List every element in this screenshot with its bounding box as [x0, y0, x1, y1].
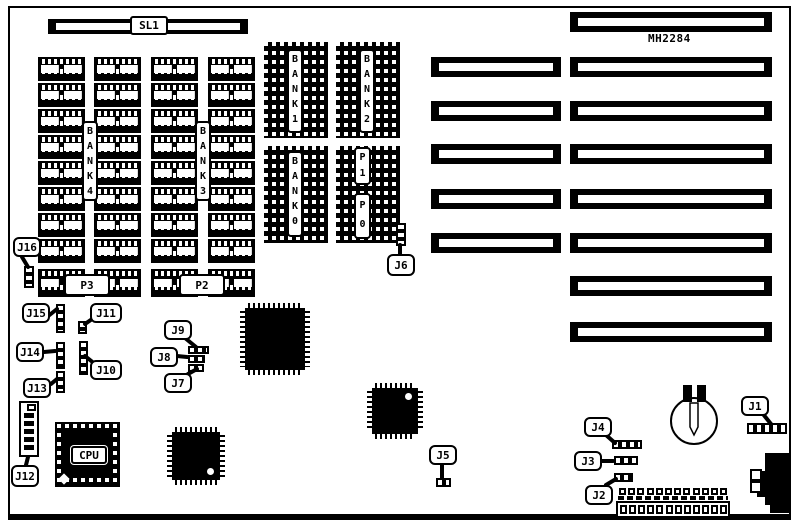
power-connector-tab: [693, 488, 700, 495]
power-connector-tab: [656, 488, 663, 495]
power-connector-tab: [683, 488, 690, 495]
power-connector-tab: [674, 488, 681, 495]
j10-jumper: [79, 341, 88, 375]
j8-jumper: [188, 355, 205, 363]
sl1-label: SL1: [130, 16, 168, 35]
j12-callout: J12: [11, 465, 39, 487]
bank4-label: BANK4: [82, 121, 98, 201]
j12-connector: [19, 401, 39, 457]
bank2-label: BANK2: [359, 49, 375, 133]
dip-memory-chip: [151, 135, 198, 159]
dip-memory-chip: [38, 109, 85, 133]
dip-memory-chip: [208, 239, 255, 263]
expansion-slot-segment: [570, 322, 772, 342]
motherboard-diagram: SL1 MH2284 BANK4 BANK3 BANK1 BANK2 BANK0…: [0, 0, 796, 527]
j14-jumper: [56, 342, 65, 369]
j3-jumper: [614, 456, 638, 465]
j12-pin-bar: [24, 421, 34, 426]
cpu-label: CPU: [71, 446, 107, 464]
j13-jumper: [56, 371, 65, 393]
j9-jumper: [188, 346, 209, 354]
power-connector-key: [618, 496, 728, 500]
j3-callout: J3: [574, 451, 602, 471]
cpu-socket: CPU: [55, 422, 120, 487]
expansion-slot-segment: [431, 144, 561, 164]
j12-pin-bar: [24, 413, 34, 418]
j5-jumper: [436, 478, 451, 487]
expansion-slot-segment: [570, 101, 772, 121]
j11-callout: J11: [90, 303, 122, 323]
power-connector-pin: [702, 505, 709, 514]
dip-memory-chip: [38, 239, 85, 263]
dip-memory-chip: [208, 213, 255, 237]
expansion-slot-segment: [431, 101, 561, 121]
dip-memory-chip: [208, 109, 255, 133]
p3-label: P3: [64, 274, 110, 296]
pin1-dot: [405, 393, 412, 400]
j4-jumper: [612, 440, 642, 449]
expansion-slot-segment: [431, 189, 561, 209]
dip-memory-chip: [38, 161, 85, 185]
j6-callout: J6: [387, 254, 415, 276]
dip-memory-chip: [38, 83, 85, 107]
dip-memory-chip: [208, 83, 255, 107]
dip-memory-chip: [151, 213, 198, 237]
j15-jumper: [56, 304, 65, 333]
qfp-chip-large: [245, 308, 305, 370]
power-connector-pin: [620, 505, 627, 514]
j7-callout: J7: [164, 373, 192, 393]
dip-memory-chip: [94, 109, 141, 133]
j4-callout: J4: [584, 417, 612, 437]
j12-pin-bar: [24, 437, 34, 442]
dip-memory-chip: [208, 135, 255, 159]
j5-callout: J5: [429, 445, 457, 465]
dip-memory-chip: [38, 213, 85, 237]
power-connector-tab: [637, 488, 644, 495]
j6-jumper: [396, 223, 406, 246]
power-connector-pin: [629, 505, 636, 514]
dip-memory-chip: [94, 187, 141, 211]
power-connector-tab: [647, 488, 654, 495]
p0-label: P0: [354, 193, 371, 239]
power-connector-pin: [693, 505, 700, 514]
dip-memory-chip: [151, 187, 198, 211]
board-id-label: MH2284: [648, 32, 708, 45]
dip-memory-chip: [94, 57, 141, 81]
j1-jumper: [747, 423, 787, 434]
dip-memory-chip: [94, 239, 141, 263]
power-connector-pin: [711, 505, 718, 514]
dip-memory-chip: [151, 83, 198, 107]
dip-memory-chip: [94, 135, 141, 159]
dip-memory-chip: [38, 187, 85, 211]
j16-jumper: [24, 266, 34, 288]
power-connector-tab: [720, 488, 727, 495]
expansion-slot-segment: [570, 57, 772, 77]
j16-callout: J16: [13, 237, 41, 257]
power-connector: [616, 488, 730, 518]
power-connector-tab: [665, 488, 672, 495]
expansion-slot-segment: [570, 276, 772, 296]
power-connector-tab: [711, 488, 718, 495]
expansion-slot-segment: [570, 144, 772, 164]
bank0-label: BANK0: [287, 151, 303, 237]
power-connector-tab: [702, 488, 709, 495]
dip-memory-chip: [208, 57, 255, 81]
power-connector-pin: [647, 505, 654, 514]
j9-callout: J9: [164, 320, 192, 340]
expansion-slot-segment: [431, 57, 561, 77]
j11-jumper: [78, 321, 87, 334]
j1-callout: J1: [741, 396, 769, 416]
expansion-slot-segment: [431, 233, 561, 253]
pin1-dot: [207, 468, 214, 475]
j7-jumper: [188, 364, 204, 372]
power-connector-body: [616, 501, 730, 518]
power-connector-pin: [720, 505, 727, 514]
j2-jumper: [614, 473, 633, 482]
dip-memory-chip: [151, 161, 198, 185]
qfp-chip-mid: [372, 388, 418, 434]
j12-pin-bar: [24, 429, 34, 434]
qfp-chip-small: [172, 432, 220, 480]
dip-memory-chip: [94, 161, 141, 185]
expansion-slot-segment: [570, 189, 772, 209]
p2-label: P2: [179, 274, 225, 296]
dip-memory-chip: [208, 187, 255, 211]
p1-label: P1: [354, 147, 371, 185]
power-connector-pin: [638, 505, 645, 514]
dip-memory-chip: [94, 83, 141, 107]
expansion-slot-segment: [570, 12, 772, 32]
power-connector-tab: [619, 488, 626, 495]
j10-callout: J10: [90, 360, 122, 380]
expansion-slot-segment: [570, 233, 772, 253]
j8-callout: J8: [150, 347, 178, 367]
dip-memory-chip: [151, 239, 198, 263]
j14-callout: J14: [16, 342, 44, 362]
j15-callout: J15: [22, 303, 50, 323]
j12-pin-bar: [24, 445, 34, 450]
j13-callout: J13: [23, 378, 51, 398]
dip-memory-chip: [151, 109, 198, 133]
power-connector-pin: [666, 505, 673, 514]
j12-keying-notch: [27, 404, 36, 411]
power-connector-pin: [675, 505, 682, 514]
bank1-label: BANK1: [287, 49, 303, 133]
dip-memory-chip: [38, 135, 85, 159]
power-connector-tab: [628, 488, 635, 495]
j2-callout: J2: [585, 485, 613, 505]
dip-memory-chip: [151, 57, 198, 81]
power-connector-pin: [656, 505, 663, 514]
dip-memory-chip: [94, 213, 141, 237]
dip-memory-chip: [38, 57, 85, 81]
bank3-label: BANK3: [195, 121, 211, 201]
dip-memory-chip: [208, 161, 255, 185]
power-connector-pin: [684, 505, 691, 514]
